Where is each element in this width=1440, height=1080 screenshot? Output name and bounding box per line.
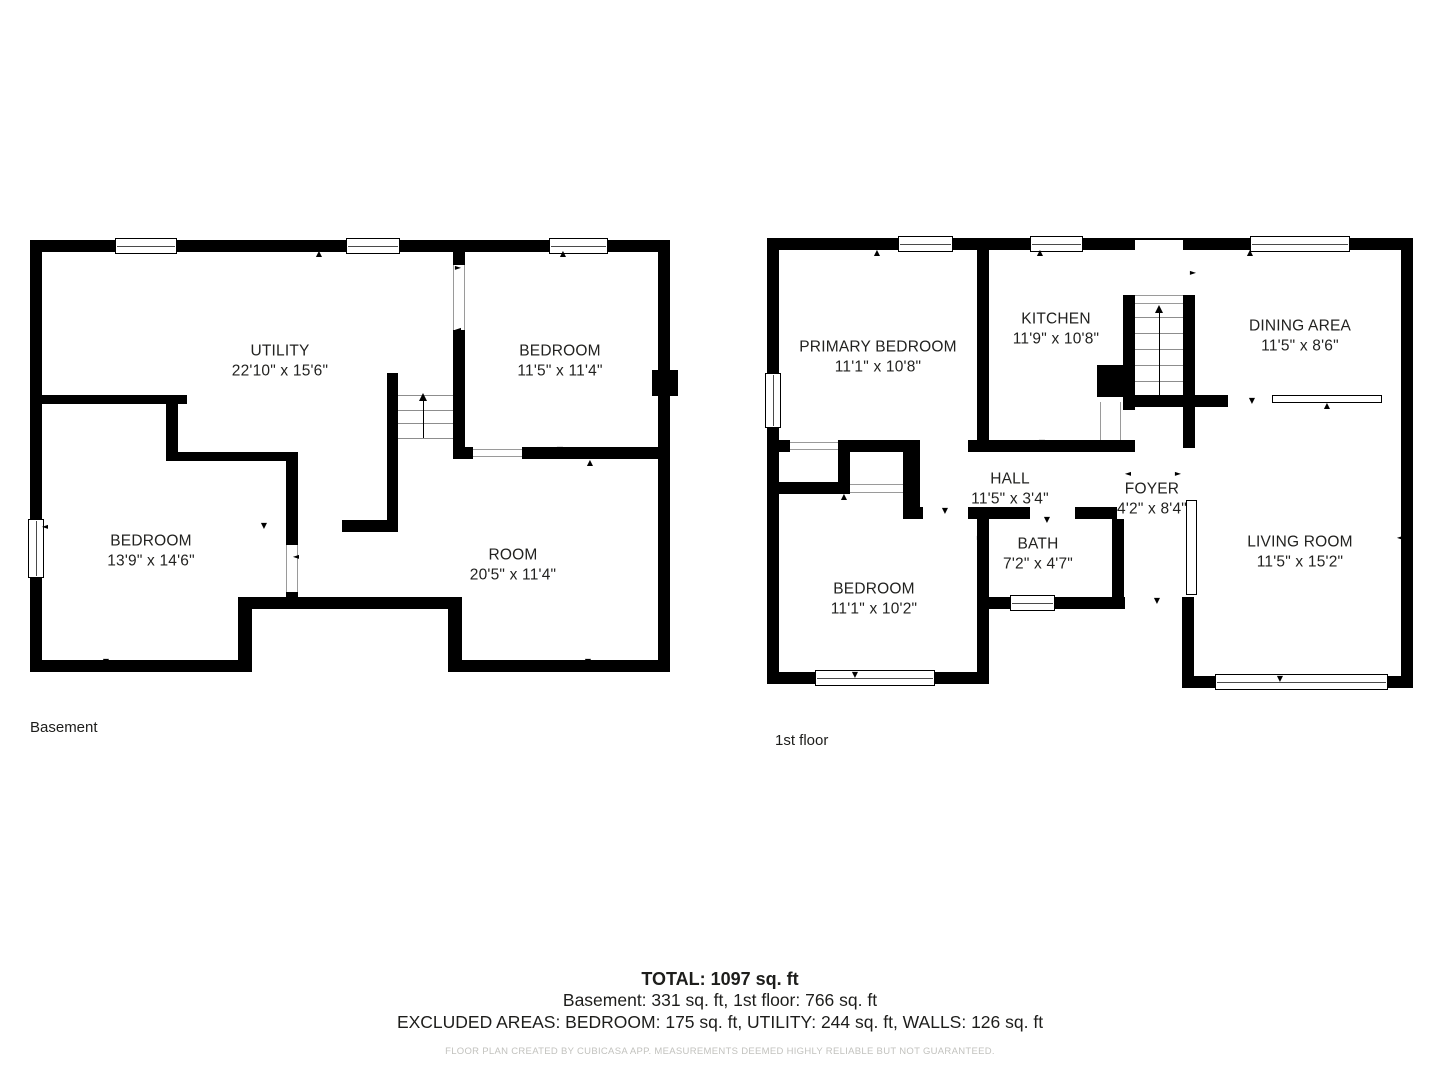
wall [977, 250, 989, 442]
first-floor-label: 1st floor [775, 732, 828, 749]
room-label-bedroom: BEDROOM 11'1" x 10'2" [831, 580, 917, 619]
door-marker-icon: ◄ [769, 341, 775, 349]
first-floor-floorplan: PRIMARY BEDROOM 11'1" x 10'8" KITCHEN 11… [0, 0, 1440, 1080]
door-marker-icon: ▼ [1039, 439, 1045, 447]
stairwell-opening [1135, 238, 1183, 250]
room-name: LIVING ROOM [1247, 533, 1353, 553]
stair-direction-line [1159, 312, 1160, 396]
excluded-areas-text: EXCLUDED AREAS: BEDROOM: 175 sq. ft, UTI… [0, 1012, 1440, 1033]
door-marker-icon: ▲ [841, 493, 847, 501]
door-marker-icon: ► [977, 534, 983, 542]
room-dims: 11'1" x 10'8" [799, 357, 956, 377]
wall [968, 440, 1135, 452]
wall [1097, 365, 1135, 397]
room-dims: 11'9" x 10'8" [1013, 329, 1099, 349]
door-marker-icon: ▲ [1037, 249, 1043, 257]
floor-breakdown-text: Basement: 331 sq. ft, 1st floor: 766 sq.… [0, 990, 1440, 1011]
wall [1075, 507, 1117, 519]
door-marker-icon: ▲ [1324, 402, 1330, 410]
room-dims: 11'5" x 3'4" [971, 489, 1049, 509]
window [815, 670, 935, 686]
room-dims: 11'5" x 8'6" [1249, 336, 1351, 356]
door-marker-icon: ▼ [942, 507, 948, 515]
door-opening [850, 484, 903, 493]
door-opening [1135, 295, 1183, 304]
wall [1182, 597, 1194, 688]
window [1010, 595, 1055, 611]
window [1215, 674, 1388, 690]
room-label-dining-area: DINING AREA 11'5" x 8'6" [1249, 317, 1351, 356]
room-name: KITCHEN [1013, 310, 1099, 330]
room-name: FOYER [1117, 480, 1187, 500]
door-marker-icon: ◄ [769, 534, 775, 542]
room-dims: 11'1" x 10'2" [831, 599, 917, 619]
door-marker-icon: ► [1175, 470, 1181, 478]
room-name: PRIMARY BEDROOM [799, 338, 956, 358]
room-label-hall: HALL 11'5" x 3'4" [971, 470, 1049, 509]
stair-up-arrow-icon [1155, 305, 1163, 313]
stair-wall [1183, 295, 1195, 448]
room-label-living-room: LIVING ROOM 11'5" x 15'2" [1247, 533, 1353, 572]
wall [1135, 395, 1228, 407]
wall [767, 482, 845, 494]
foyer-railing [1186, 500, 1197, 595]
door-marker-icon: ▼ [1044, 516, 1050, 524]
room-name: HALL [971, 470, 1049, 490]
wall [1112, 519, 1124, 597]
total-area-text: TOTAL: 1097 sq. ft [0, 969, 1440, 990]
door-marker-icon: ▲ [1247, 249, 1253, 257]
door-marker-icon: ► [1190, 269, 1196, 277]
door-marker-icon: ◄ [1397, 534, 1403, 542]
disclaimer-text: FLOOR PLAN CREATED BY CUBICASA APP. MEAS… [0, 1046, 1440, 1057]
wall [767, 440, 790, 452]
window [898, 236, 953, 252]
room-label-bath: BATH 7'2" x 4'7" [1003, 535, 1073, 574]
window [1250, 236, 1350, 252]
room-dims: 4'2" x 8'4" [1117, 499, 1187, 519]
door-marker-icon: ▼ [852, 671, 858, 679]
room-label-kitchen: KITCHEN 11'9" x 10'8" [1013, 310, 1099, 349]
door-opening [790, 442, 838, 450]
door-marker-icon: ▲ [875, 440, 881, 448]
door-opening [1100, 402, 1121, 440]
room-label-foyer: FOYER 4'2" x 8'4" [1117, 480, 1187, 519]
room-label-primary-bedroom: PRIMARY BEDROOM 11'1" x 10'8" [799, 338, 956, 377]
floorplan-page: UTILITY 22'10" x 15'6" BEDROOM 11'5" x 1… [0, 0, 1440, 1080]
wall [767, 238, 779, 684]
door-marker-icon: ▼ [1277, 675, 1283, 683]
door-marker-icon: ▼ [1249, 397, 1255, 405]
room-dims: 7'2" x 4'7" [1003, 554, 1073, 574]
door-marker-icon: ◄ [1125, 470, 1131, 478]
room-dims: 11'5" x 15'2" [1247, 552, 1353, 572]
door-marker-icon: ▲ [874, 249, 880, 257]
room-name: BEDROOM [831, 580, 917, 600]
door-marker-icon: ▼ [1154, 597, 1160, 605]
room-name: BATH [1003, 535, 1073, 555]
window [765, 373, 781, 428]
wall [903, 507, 923, 519]
room-name: DINING AREA [1249, 317, 1351, 337]
wall [1401, 238, 1413, 688]
